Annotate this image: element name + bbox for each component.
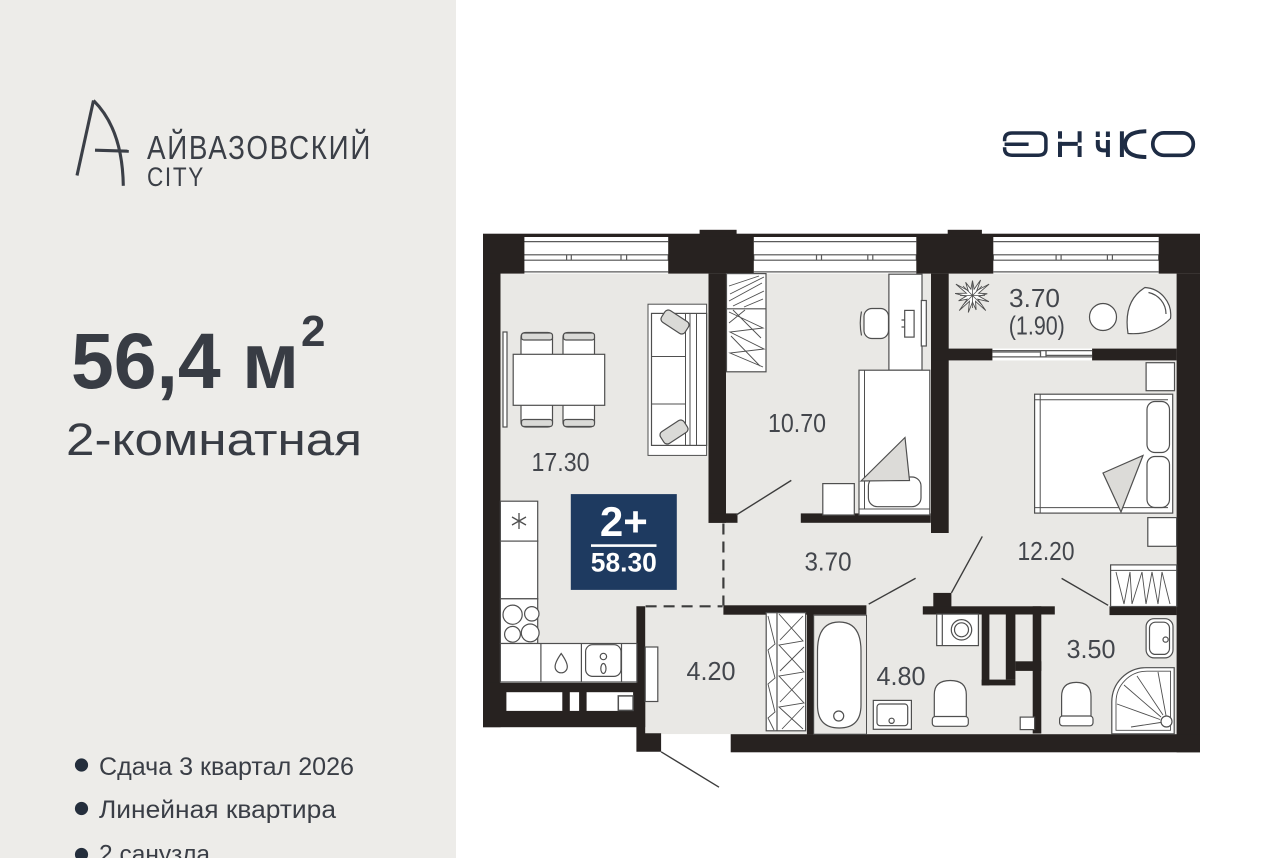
svg-text:17.30: 17.30 xyxy=(532,447,590,477)
svg-text:3.70: 3.70 xyxy=(805,547,852,577)
svg-text:2+: 2+ xyxy=(600,498,648,545)
svg-text:3.50: 3.50 xyxy=(1067,634,1116,664)
svg-text:58.30: 58.30 xyxy=(591,548,657,578)
svg-text:Сдача 3 квартал 2026: Сдача 3 квартал 2026 xyxy=(99,753,354,781)
svg-text:4.80: 4.80 xyxy=(877,661,926,691)
svg-text:2 санузла: 2 санузла xyxy=(99,841,210,858)
svg-text:(1.90): (1.90) xyxy=(1009,311,1065,341)
svg-text:4.20: 4.20 xyxy=(687,656,736,686)
svg-text:2-комнатная: 2-комнатная xyxy=(66,414,362,465)
svg-text:CITY: CITY xyxy=(147,162,205,192)
svg-text:3.70: 3.70 xyxy=(1009,283,1060,313)
svg-text:12.20: 12.20 xyxy=(1018,536,1075,566)
svg-text:56,4 м: 56,4 м xyxy=(71,316,299,405)
svg-text:Линейная квартира: Линейная квартира xyxy=(99,796,336,824)
svg-text:АЙВАЗОВСКИЙ: АЙВАЗОВСКИЙ xyxy=(147,129,372,166)
svg-text:2: 2 xyxy=(301,307,325,356)
svg-text:10.70: 10.70 xyxy=(768,408,826,438)
